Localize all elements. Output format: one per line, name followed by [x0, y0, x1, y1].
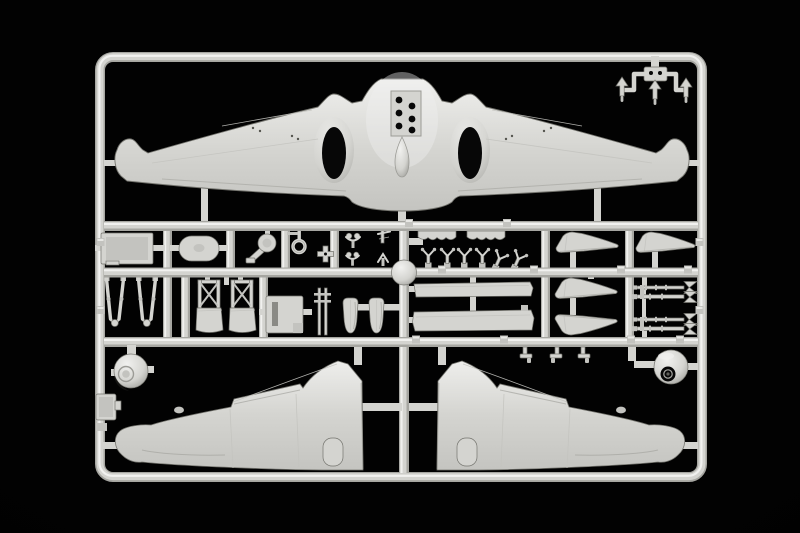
sprue-photo [0, 0, 800, 533]
photo-stage [0, 0, 800, 533]
vignette-overlay [0, 0, 800, 533]
